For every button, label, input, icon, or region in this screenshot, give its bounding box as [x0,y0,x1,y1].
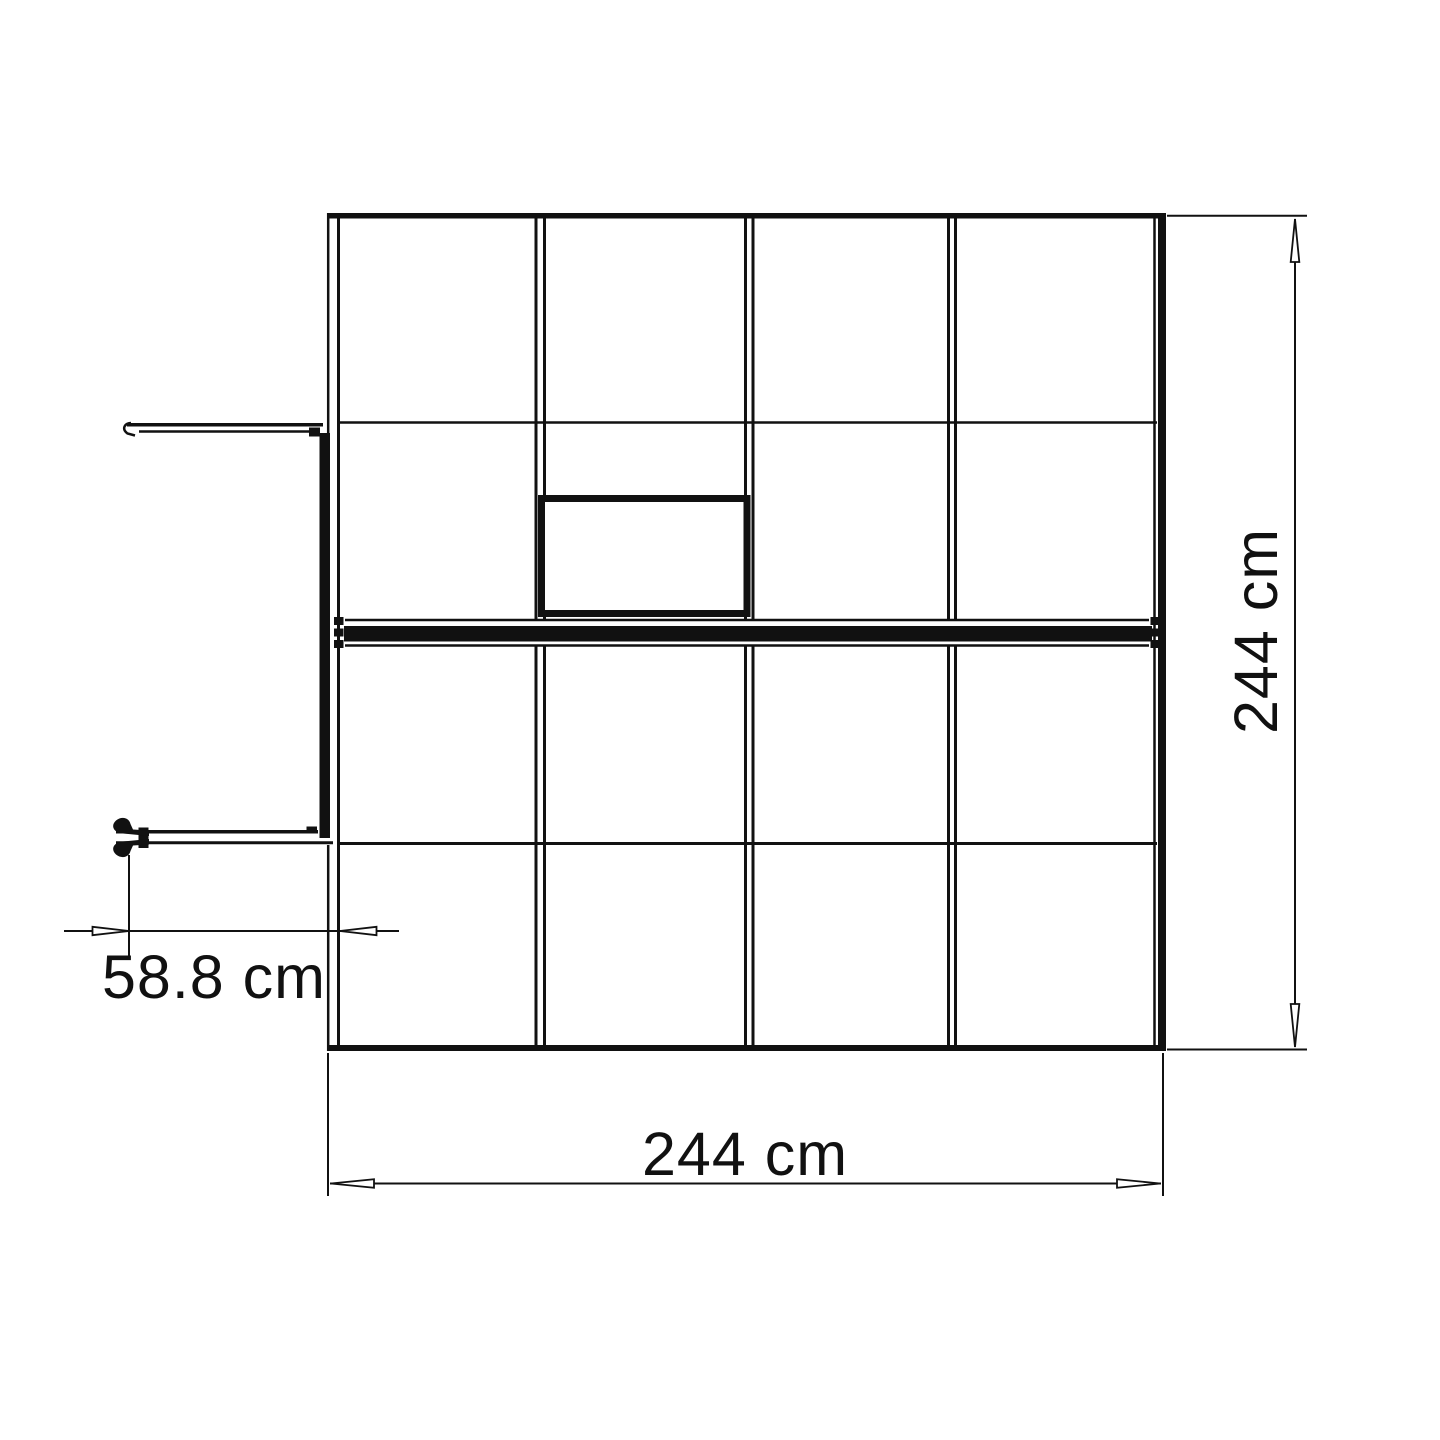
door-opening-jamb [320,433,331,838]
door-hinge-top [309,428,320,437]
dimension-width: 244 cm [328,1053,1163,1196]
arrowhead-left [331,1179,374,1188]
door-leaf-bottom [113,818,333,857]
door-handle [113,818,149,857]
door-leaf-top [124,423,323,437]
wall-bottom-edge [328,1045,1166,1051]
wall-top-edge [328,213,1166,219]
dimension-door-width: 58.8 cm [64,855,399,1011]
arrowhead-left-inward [340,927,377,935]
door-dimension-label: 58.8 cm [102,943,326,1011]
arrowhead-right-inward [93,927,130,935]
ridge-bar [344,626,1152,642]
height-dimension-label: 244 cm [1222,528,1290,734]
arrowhead-down [1291,1004,1300,1047]
ridge-end-cap-right [1151,617,1161,648]
ridge-end-cap-left [334,617,344,648]
arrowhead-up [1291,219,1300,262]
door-hinge-bottom [307,827,318,834]
arrowhead-right [1117,1179,1160,1188]
width-dimension-label: 244 cm [642,1120,848,1188]
technical-drawing: 244 cm 244 cm 58.8 cm [0,0,1440,1440]
roof-vent-window [542,499,748,614]
dimension-height: 244 cm [1167,216,1307,1050]
greenhouse-top-view-diagram: 244 cm 244 cm 58.8 cm [0,0,1440,1440]
ridge-beam [334,617,1160,648]
